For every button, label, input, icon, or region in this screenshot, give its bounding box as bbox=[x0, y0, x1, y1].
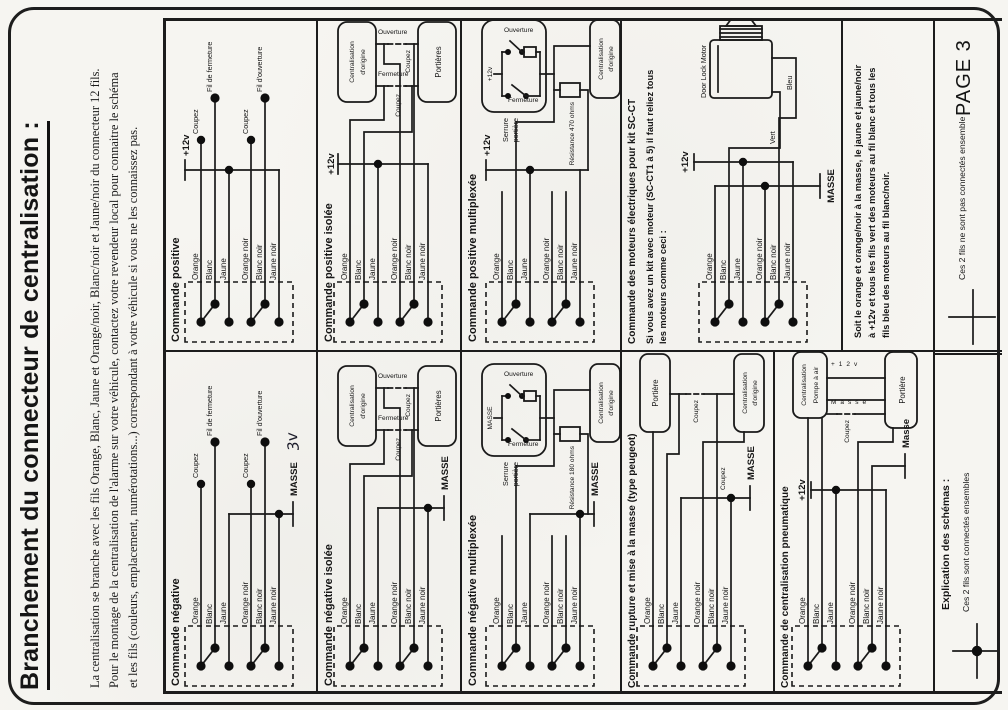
label-coupez: Coupez bbox=[395, 438, 402, 461]
section-title: Commande négative bbox=[170, 578, 182, 686]
label-ouverture: Ouverture bbox=[378, 373, 408, 380]
not-connected-symbol bbox=[945, 286, 997, 348]
switch-symbols bbox=[494, 41, 546, 99]
pin-label-masse: Masse bbox=[831, 399, 870, 406]
intro-line-3: et les fils (couleurs, emplacement, numé… bbox=[126, 127, 141, 688]
box-label: Pompe à air bbox=[813, 366, 820, 403]
box-label: Portières bbox=[434, 390, 443, 421]
section-title: Commande de centralisation pneumatique bbox=[780, 486, 791, 688]
label-coupez: Coupez bbox=[693, 400, 700, 423]
label-plus12v: +12v bbox=[680, 151, 691, 173]
label-resistance: Résistance 180 ohms bbox=[569, 445, 576, 509]
legend-connected: Ces 2 fils sont connectés ensembles bbox=[961, 473, 971, 612]
label-plus12v: +12v bbox=[326, 153, 337, 175]
handwritten-annotation: 3v bbox=[282, 430, 303, 452]
label-fil-fermeture: Fil de fermeture bbox=[205, 42, 214, 92]
box-label: d'origine bbox=[360, 393, 367, 419]
box-label: Portière bbox=[651, 379, 660, 406]
box-label: d'origine bbox=[360, 49, 367, 75]
pin-label-plus12v: +12v bbox=[831, 361, 861, 368]
box-label: Portières bbox=[434, 46, 443, 77]
box-centralisation-origine bbox=[734, 354, 764, 432]
label-plus12v: +12v bbox=[797, 479, 808, 501]
note-line-1: Soit le orange et orange/noir à la masse… bbox=[852, 26, 866, 338]
section-moteurs-sc-ct: Commande des moteurs électriques pour ki… bbox=[622, 18, 843, 350]
label-plus12v: +12v bbox=[482, 134, 493, 156]
label-masse: MASSE bbox=[440, 456, 451, 490]
box-label: Centralisation bbox=[598, 382, 605, 424]
section-commande-rupture: Commande rupture et mise à la masse (typ… bbox=[622, 350, 775, 694]
label-coupez: Coupez bbox=[241, 453, 250, 478]
label-coupez: Coupez bbox=[241, 109, 250, 134]
sc-ct-note: Soit le orange et orange/noir à la masse… bbox=[852, 26, 894, 338]
section-commande-negative: Commande négative Coupez Fil de fermetur… bbox=[165, 350, 318, 694]
label-fil-ouverture: Fil d'ouverture bbox=[255, 47, 264, 92]
document-page: Orange Blanc Jaune Orange noir Blanc noi… bbox=[0, 0, 1008, 710]
section-commande-negative-isolee: Commande négative isolée bbox=[318, 350, 462, 694]
page-title: Branchement du connecteur de centralisat… bbox=[16, 121, 50, 690]
scanned-page-viewport: Orange Blanc Jaune Orange noir Blanc noi… bbox=[0, 0, 1008, 710]
label-plus12v: +12v bbox=[181, 134, 192, 156]
box-centralisation-origine bbox=[338, 366, 376, 446]
label-fil-ouverture: Fil d'ouverture bbox=[255, 391, 264, 436]
label-masse: MASSE bbox=[826, 169, 837, 203]
label-fermeture: Fermeture bbox=[508, 441, 539, 448]
section-title: Commande positive bbox=[170, 237, 182, 342]
label-coupez: Coupez bbox=[191, 453, 200, 478]
label-serrure-2: portière bbox=[511, 118, 520, 142]
section-title: Commande positive multiplexée bbox=[467, 174, 479, 342]
switch-symbols bbox=[494, 385, 546, 443]
label-masse: MASSE bbox=[289, 462, 300, 496]
box-label: Centralisation bbox=[801, 364, 808, 406]
note-line-3: fils bleu des moteurs au fil blanc/noir. bbox=[880, 26, 894, 338]
box-label: Centralisation bbox=[349, 41, 356, 83]
label-plus12v-in-box: +12v bbox=[487, 66, 494, 81]
label-coupez: Coupez bbox=[720, 467, 727, 490]
label-masse-in-box: MASSE bbox=[487, 406, 494, 430]
section-commande-negative-multiplexee: Commande négative multiplexée bbox=[462, 350, 622, 694]
legend-heading: Explication des schémas : bbox=[940, 479, 952, 610]
strip-divider bbox=[935, 353, 1002, 355]
box-centralisation-origine bbox=[338, 22, 376, 102]
box-pompe-a-air bbox=[793, 352, 827, 418]
door-lock-motor bbox=[710, 18, 772, 98]
note-line-2: à +12v et tous les fils vert des moteurs… bbox=[866, 26, 880, 338]
label-vert: Vert bbox=[768, 131, 777, 144]
connected-symbol bbox=[949, 620, 999, 682]
label-masse: MASSE bbox=[746, 446, 757, 480]
box-centralisation-origine bbox=[590, 20, 620, 98]
label-fermeture: Fermeture bbox=[508, 97, 539, 104]
intro-line-1: La centralisation se branche avec les fi… bbox=[88, 69, 103, 689]
section-commande-positive-multiplexee: Commande positive multiplexée bbox=[462, 18, 622, 350]
label-coupez: Coupez bbox=[405, 394, 412, 417]
box-label: d'origine bbox=[608, 46, 615, 72]
label-fil-fermeture: Fil de fermeture bbox=[205, 386, 214, 436]
box-label: d'origine bbox=[752, 380, 759, 406]
label-ouverture: Ouverture bbox=[378, 29, 408, 36]
label-door-lock-motor: Door Lock Motor bbox=[699, 44, 708, 98]
label-coupez: Coupez bbox=[844, 420, 851, 443]
instruction-line-1: Si vous avez un kit avec moteur (SC-CT1 … bbox=[645, 70, 655, 344]
section-commande-positive-isolee: Commande positive isolée bbox=[318, 18, 462, 350]
box-centralisation-origine bbox=[590, 364, 620, 442]
section-title: Commande des moteurs électriques pour ki… bbox=[627, 99, 638, 344]
section-title: Commande négative multiplexée bbox=[467, 515, 479, 686]
label-serrure: Serrure bbox=[501, 462, 510, 486]
intro-line-2: Pour le montage de la centralisation de … bbox=[107, 72, 122, 688]
label-bleu: Bleu bbox=[785, 76, 794, 90]
label-masse: MASSE bbox=[590, 462, 601, 496]
box-label: d'origine bbox=[608, 390, 615, 416]
box-label: Centralisation bbox=[349, 385, 356, 427]
section-centralisation-pneumatique: Commande de centralisation pneumatique bbox=[775, 350, 935, 694]
instruction-line-2: les moteurs comme ceci : bbox=[658, 230, 668, 344]
legend-not-connected: Ces 2 fils ne sont pas connectés ensembl… bbox=[957, 117, 967, 280]
legend-strip: Explication des schémas : Ces 2 fils son… bbox=[935, 18, 1002, 694]
label-resistance: Résistance 470 ohms bbox=[569, 101, 576, 165]
label-serrure: Serrure bbox=[501, 118, 510, 142]
section-commande-positive: Commande positive +12v Coupez Fil de bbox=[165, 18, 318, 350]
page-number: PAGE 3 bbox=[953, 39, 976, 116]
box-label: Centralisation bbox=[742, 372, 749, 414]
box-label: Centralisation bbox=[598, 38, 605, 80]
label-coupez: Coupez bbox=[395, 94, 402, 117]
label-ouverture: Ouverture bbox=[504, 27, 534, 34]
label-ouverture: Ouverture bbox=[504, 371, 534, 378]
box-label: Portière bbox=[898, 376, 907, 403]
label-serrure-2: portière bbox=[511, 462, 520, 486]
label-coupez: Coupez bbox=[405, 50, 412, 73]
label-coupez: Coupez bbox=[191, 109, 200, 134]
label-masse: Masse bbox=[901, 419, 912, 448]
